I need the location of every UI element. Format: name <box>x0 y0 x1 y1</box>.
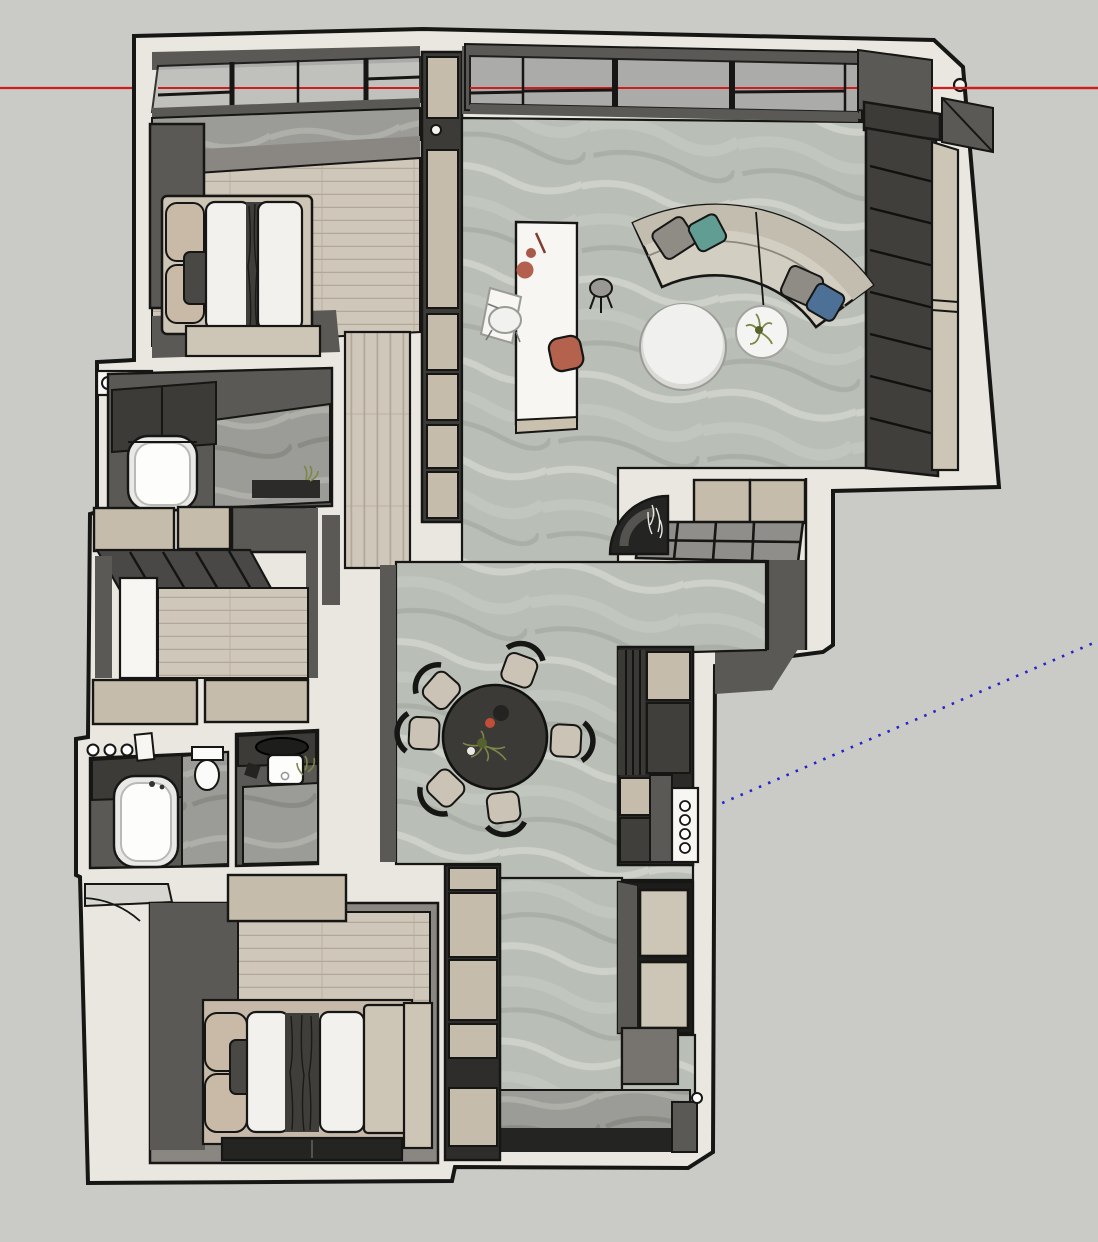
toilet-bowl <box>195 760 219 790</box>
oven-knob[interactable] <box>680 801 690 811</box>
closet-wall-dark <box>232 507 315 552</box>
island-top[interactable] <box>516 222 577 424</box>
wall-hardware-circle[interactable] <box>431 125 441 135</box>
toilet-tank <box>192 747 223 760</box>
dining-west-wall-face <box>380 565 396 862</box>
room-entry-hall[interactable] <box>445 865 702 1160</box>
entry-closet-door[interactable] <box>449 893 497 957</box>
kitchen-cabinet-door[interactable] <box>750 480 805 523</box>
bed-duvet-right[interactable] <box>258 202 302 330</box>
closet-mirror-door[interactable] <box>120 578 157 678</box>
table-fruit <box>485 718 495 728</box>
oven-knob[interactable] <box>680 815 690 825</box>
tub-drain <box>160 785 165 790</box>
entry-step-black <box>497 1128 680 1152</box>
double-bed[interactable] <box>162 196 320 356</box>
window-rail <box>732 91 845 92</box>
closet-door[interactable] <box>427 314 458 370</box>
entry-closet-door[interactable] <box>449 868 497 890</box>
bedroom-side-panel[interactable] <box>404 1003 432 1148</box>
column-side <box>650 775 672 862</box>
tub-faucet <box>149 781 155 787</box>
dining-table[interactable] <box>443 685 547 789</box>
island-bowl[interactable] <box>517 262 534 279</box>
side-table-plant[interactable] <box>736 306 788 358</box>
hallway-wood-floor[interactable] <box>345 332 410 568</box>
closet-door[interactable] <box>427 57 458 118</box>
switch-circle[interactable] <box>105 745 116 756</box>
model-viewport[interactable] <box>0 0 1098 1242</box>
round-sink-black[interactable] <box>256 738 308 756</box>
kitchen-tall-column[interactable] <box>618 647 698 865</box>
entry-threshold[interactable] <box>500 1090 690 1130</box>
closet-bench[interactable] <box>205 680 308 722</box>
column-door-dark[interactable] <box>647 703 690 773</box>
table-plant-pot <box>477 738 487 748</box>
plant-center <box>755 326 763 334</box>
closet-cabinet[interactable] <box>94 508 174 551</box>
entry-closet-door[interactable] <box>449 1024 497 1058</box>
entry-closet-column[interactable] <box>445 865 500 1160</box>
table-dish <box>467 747 475 755</box>
room-powder[interactable] <box>236 730 318 866</box>
room-master-bedroom[interactable] <box>150 46 420 358</box>
oven-knob[interactable] <box>680 843 690 853</box>
switch-circle[interactable] <box>122 745 133 756</box>
door-stop-circle[interactable] <box>692 1093 702 1103</box>
coffee-table[interactable] <box>640 304 726 390</box>
bedroom-dresser[interactable] <box>228 875 346 921</box>
hall-closet-column[interactable] <box>422 52 462 522</box>
room-bathroom-bottom[interactable] <box>88 730 319 868</box>
closet-door[interactable] <box>427 150 458 308</box>
wall-return-dark <box>768 560 806 650</box>
switch-circle[interactable] <box>88 745 99 756</box>
closet-door[interactable] <box>427 425 458 468</box>
bed-bench[interactable] <box>186 326 320 356</box>
bathtub-bottom[interactable] <box>114 776 178 867</box>
entry-door-jamb <box>672 1102 697 1152</box>
shelf-opening[interactable] <box>640 962 688 1028</box>
shelf-side-angled <box>618 882 637 1033</box>
window-rail <box>523 90 615 91</box>
bedroom-wood-floor[interactable] <box>238 912 430 1004</box>
bath-shelf[interactable] <box>252 480 320 498</box>
viewport-canvas[interactable] <box>0 0 1098 1242</box>
double-bed-2[interactable] <box>205 1005 408 1133</box>
powder-marble-floor[interactable] <box>243 783 318 864</box>
oven-knob[interactable] <box>680 829 690 839</box>
window-rail <box>470 92 523 93</box>
closet-cabinet[interactable] <box>178 507 230 549</box>
shelf-opening[interactable] <box>640 890 688 956</box>
tub-basin <box>135 443 190 505</box>
island-faucet-knob[interactable] <box>526 248 536 258</box>
door-leaf-small[interactable] <box>135 733 155 761</box>
island-base <box>516 417 577 433</box>
kitchen-cabinet-door[interactable] <box>694 480 750 523</box>
closet-door[interactable] <box>427 472 458 518</box>
closet-bench[interactable] <box>93 680 197 724</box>
column-door-dark[interactable] <box>620 818 650 862</box>
closet-wood-floor[interactable] <box>158 588 308 678</box>
column-door[interactable] <box>647 652 690 700</box>
stool-terracotta[interactable] <box>547 334 585 373</box>
bed-duvet-left[interactable] <box>247 1012 289 1132</box>
room-bathroom-top[interactable] <box>97 368 332 512</box>
column-door[interactable] <box>620 778 650 815</box>
shelf-base-box[interactable] <box>622 1028 678 1084</box>
bed-duvet-left[interactable] <box>206 202 250 330</box>
bed-footboard[interactable] <box>364 1005 408 1133</box>
tub-basin <box>121 783 171 861</box>
window-rail <box>366 77 420 79</box>
bathtub-top[interactable] <box>128 436 197 510</box>
entry-closet-door[interactable] <box>449 960 497 1020</box>
wall-hardware-circle[interactable] <box>954 79 966 91</box>
window-glass[interactable] <box>470 56 858 112</box>
room-walkin-closet[interactable] <box>93 507 318 724</box>
closet-door[interactable] <box>427 374 458 420</box>
entry-closet-door[interactable] <box>449 1088 497 1146</box>
living-wardrobe[interactable] <box>864 102 958 476</box>
bed-duvet-right[interactable] <box>320 1012 364 1132</box>
table-bowl <box>493 705 509 721</box>
closet-west-band <box>95 556 112 678</box>
wardrobe-side-panel[interactable] <box>932 142 958 470</box>
oven-panel[interactable] <box>672 788 698 862</box>
wall-shadow-strip <box>322 515 340 605</box>
tv-console[interactable] <box>222 1138 402 1160</box>
